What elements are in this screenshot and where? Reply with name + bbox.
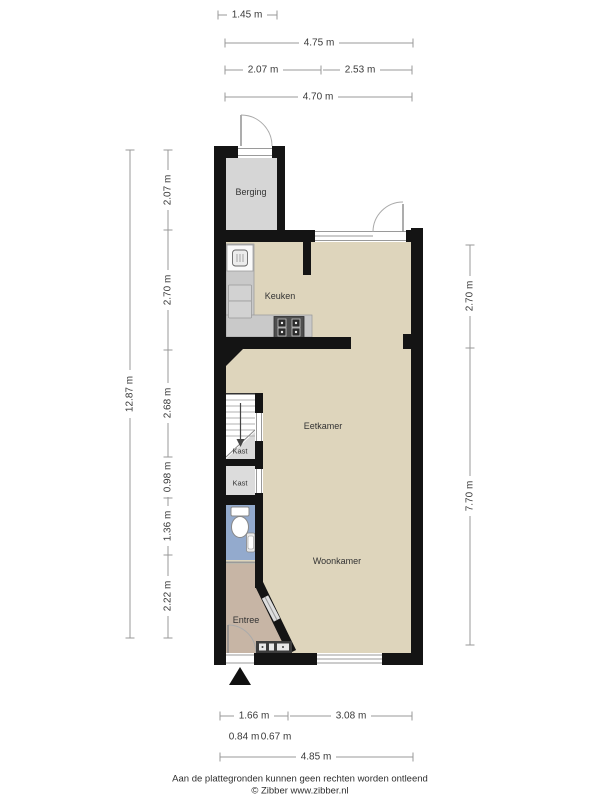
- top-wall: [406, 230, 411, 242]
- svg-text:12.87 m: 12.87 m: [125, 376, 136, 412]
- footer-credit: © Zibber www.zibber.nl: [251, 786, 348, 797]
- meter-box-icon: [256, 641, 292, 653]
- room-label-woonkamer: Woonkamer: [313, 556, 361, 566]
- right-wall-notch: [403, 334, 411, 349]
- dimension-bottom-1: 1.66 m: [220, 710, 288, 722]
- svg-text:1.45 m: 1.45 m: [232, 10, 263, 21]
- stove-icon: [274, 317, 304, 338]
- dimension-bottom-total: 4.85 m: [220, 751, 413, 763]
- dimension-left-total: 12.87 m: [124, 150, 136, 638]
- svg-text:2.07 m: 2.07 m: [248, 65, 279, 76]
- svg-text:2.22 m: 2.22 m: [163, 581, 174, 612]
- room-label-entree: Entree: [233, 615, 260, 625]
- cabinet: [229, 285, 252, 301]
- stairs-top-edge: [226, 393, 255, 395]
- dimension-top-1: 1.45 m: [218, 9, 277, 21]
- top-wall: [214, 230, 315, 242]
- kast-door: [255, 469, 263, 493]
- svg-text:7.70 m: 7.70 m: [465, 481, 476, 512]
- hand-basin-icon: [247, 533, 256, 552]
- berging-right-wall: [277, 146, 285, 242]
- svg-text:2.70 m: 2.70 m: [465, 281, 476, 312]
- dimension-top-5: 4.70 m: [225, 91, 412, 103]
- entrance-marker-icon: [229, 667, 251, 685]
- top-window: [315, 230, 406, 242]
- svg-text:2.70 m: 2.70 m: [163, 275, 174, 306]
- room-label-keuken: Keuken: [265, 291, 296, 301]
- room-label-eetkamer: Eetkamer: [304, 421, 343, 431]
- floorplan-canvas: Berging Keuken Eetkamer Kast Kast Woonka…: [0, 0, 600, 800]
- kitchen-divider-wall: [214, 337, 351, 349]
- room-label-kast: Kast: [232, 479, 248, 488]
- bottom-wall: [254, 653, 317, 665]
- dimension-bottom-3: 0.84 m 0.67 m: [229, 732, 292, 743]
- back-door: [373, 202, 403, 232]
- svg-text:4.70 m: 4.70 m: [303, 92, 334, 103]
- svg-text:1.66 m: 1.66 m: [239, 711, 270, 722]
- svg-text:4.85 m: 4.85 m: [301, 752, 332, 763]
- left-wall: [214, 146, 226, 665]
- svg-text:4.75 m: 4.75 m: [304, 38, 335, 49]
- dimension-bottom-2: 3.08 m: [290, 710, 412, 722]
- dimension-top-3: 2.07 m: [225, 64, 321, 76]
- kitchen-wall-stub: [303, 242, 311, 275]
- kast-understairs-door: [255, 413, 263, 441]
- svg-text:2.53 m: 2.53 m: [345, 65, 376, 76]
- berging-top-wall: [214, 146, 238, 158]
- cabinet: [229, 301, 252, 318]
- footer: Aan de plattegronden kunnen geen rechten…: [172, 774, 428, 797]
- svg-text:2.07 m: 2.07 m: [163, 175, 174, 206]
- right-wall: [411, 228, 423, 665]
- svg-text:0.98 m: 0.98 m: [163, 462, 174, 493]
- kast-divider-wall: [226, 459, 263, 466]
- dimension-right: 2.70 m 7.70 m: [464, 245, 476, 645]
- dimension-top-2: 4.75 m: [225, 37, 413, 49]
- washing-machine-icon: [227, 245, 253, 271]
- bottom-wall: [382, 653, 423, 665]
- svg-text:0.84 m: 0.84 m: [229, 732, 260, 743]
- floorplan-page: Berging Keuken Eetkamer Kast Kast Woonka…: [0, 0, 600, 800]
- toilet-top-wall: [226, 495, 263, 505]
- dimension-left-segments: 2.07 m 2.70 m 2.68 m 0.98 m 1.36 m 2.22 …: [162, 150, 174, 638]
- svg-text:0.67 m: 0.67 m: [261, 732, 292, 743]
- bottom-window: [317, 653, 382, 665]
- toilet-icon: [231, 507, 249, 538]
- berging-top-wall: [272, 146, 285, 158]
- room-label-berging: Berging: [235, 187, 266, 197]
- footer-disclaimer: Aan de plattegronden kunnen geen rechten…: [172, 774, 428, 785]
- svg-text:2.68 m: 2.68 m: [163, 388, 174, 419]
- dimension-top-4: 2.53 m: [323, 64, 412, 76]
- room-label-kast-understairs: Kast: [232, 447, 248, 456]
- berging-door: [238, 115, 272, 158]
- svg-text:3.08 m: 3.08 m: [336, 711, 367, 722]
- svg-text:1.36 m: 1.36 m: [163, 511, 174, 542]
